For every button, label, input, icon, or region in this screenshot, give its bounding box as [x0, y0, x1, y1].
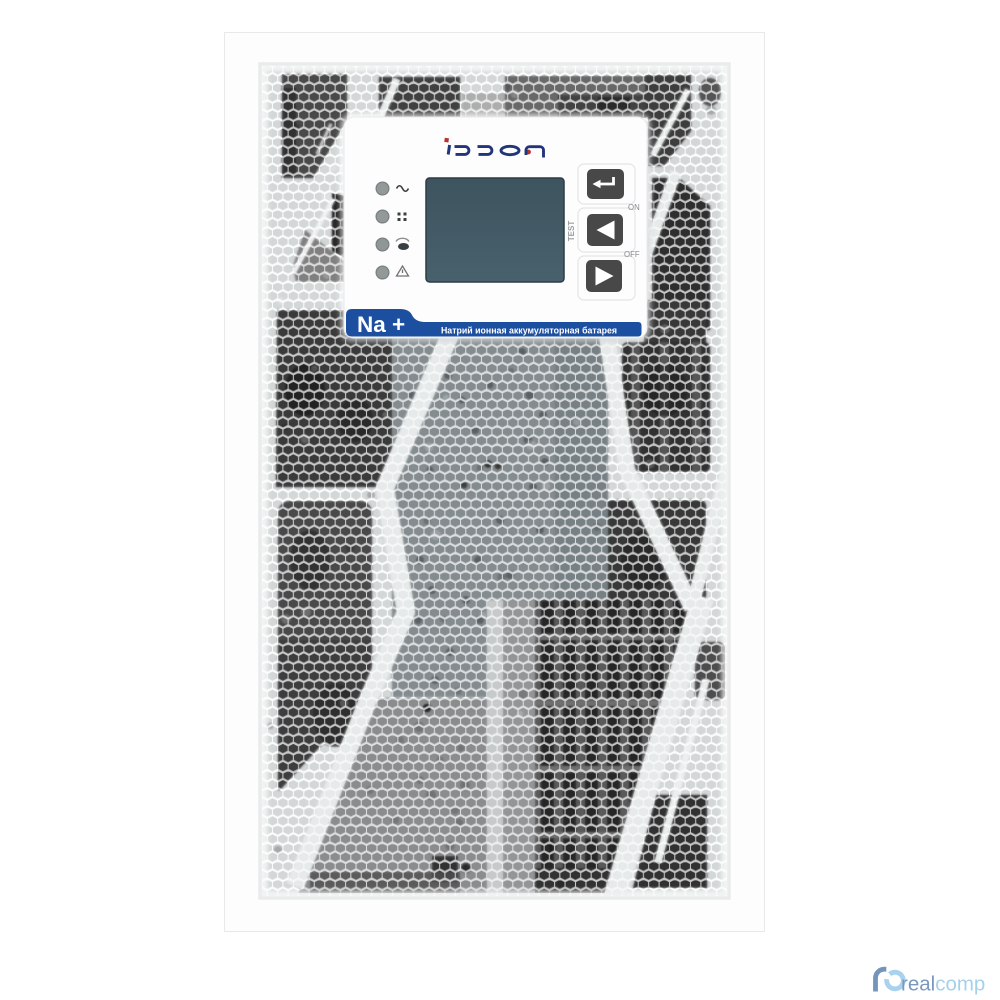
svg-text:realcomp: realcomp: [901, 973, 985, 996]
svg-text:Na +: Na +: [357, 312, 405, 337]
svg-text:Натрий ионная аккумуляторная б: Натрий ионная аккумуляторная батарея: [441, 326, 617, 336]
svg-text:TEST: TEST: [567, 221, 576, 242]
svg-text:OFF: OFF: [624, 250, 640, 259]
svg-text:ON: ON: [628, 203, 640, 212]
